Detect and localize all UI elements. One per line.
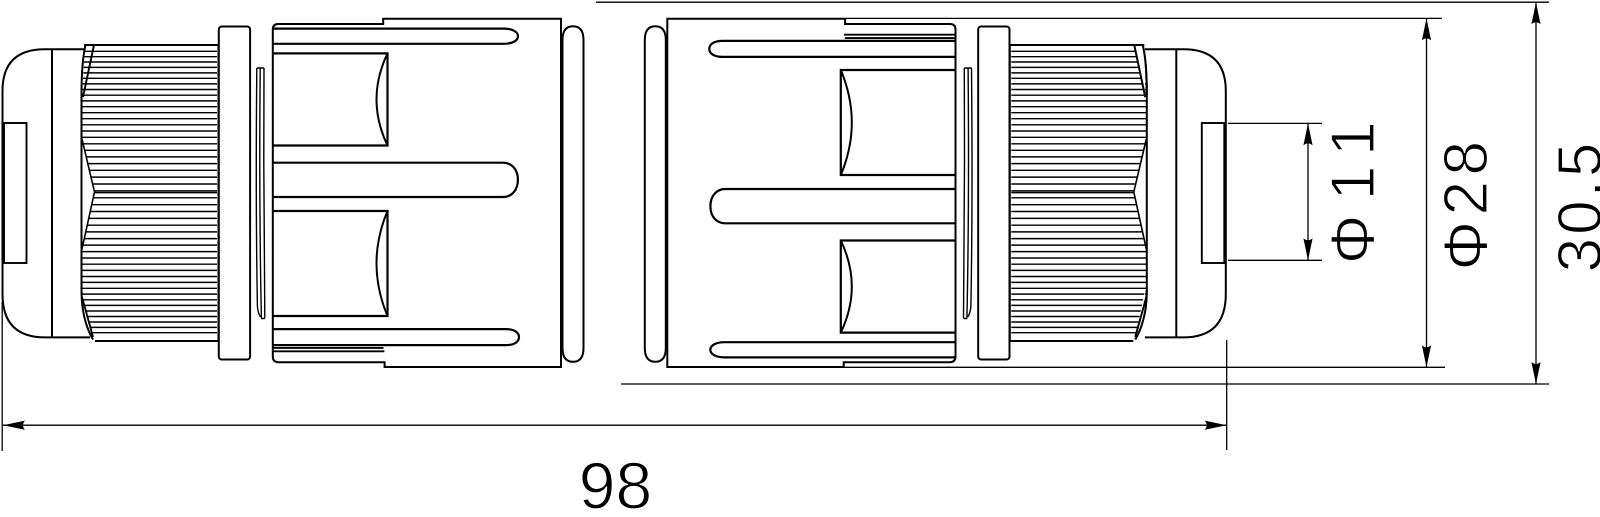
svg-text:Φ28: Φ28 [1432, 136, 1501, 271]
svg-text:Φ11: Φ11 [1319, 107, 1388, 264]
svg-text:30.5: 30.5 [1546, 140, 1600, 273]
svg-text:98: 98 [579, 449, 652, 513]
